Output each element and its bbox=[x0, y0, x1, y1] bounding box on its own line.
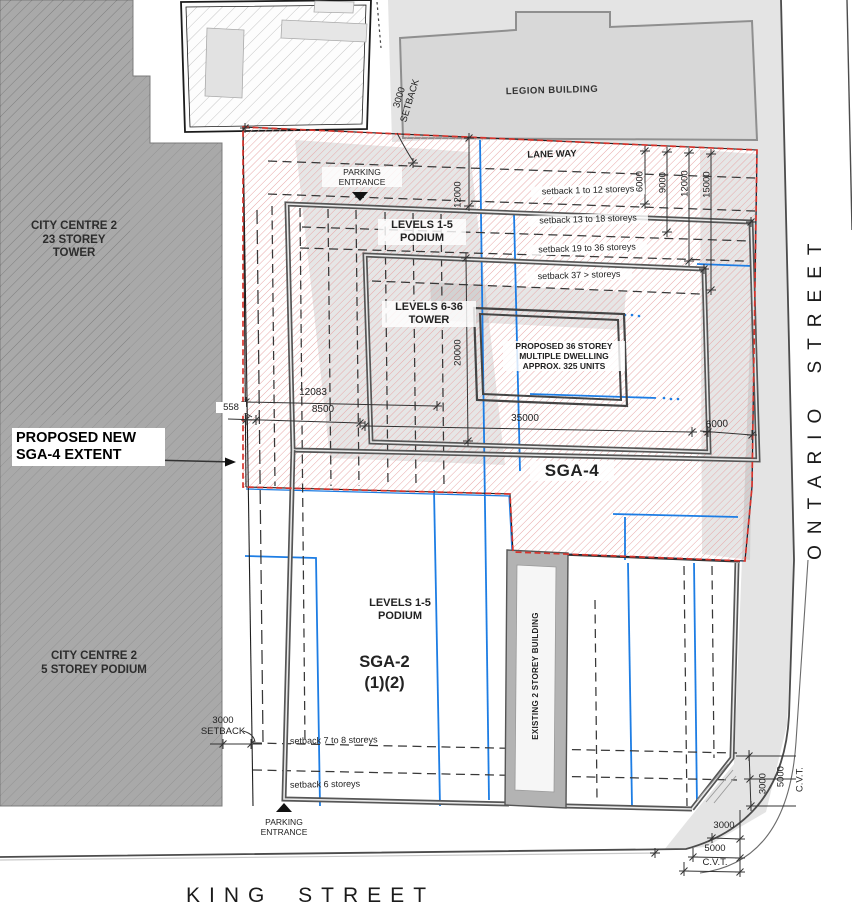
proposed-new-extent-label: PROPOSED NEW SGA-4 EXTENT bbox=[12, 428, 165, 466]
city-centre-tower-label: CITY CENTRE 2 23 STOREY TOWER bbox=[8, 220, 140, 261]
dim-35000: 35000 bbox=[490, 413, 560, 425]
dim-3000-vertical: 3000 bbox=[757, 761, 768, 807]
existing-building-label: EXISTING 2 STOREY BUILDING bbox=[531, 596, 543, 756]
dim-6000-east: 6000 bbox=[697, 418, 738, 432]
dim-558: 558 bbox=[216, 402, 246, 413]
dim-15000-lane: 15000 bbox=[701, 162, 712, 208]
dim-6000-lane: 6000 bbox=[634, 159, 645, 205]
dim-8500: 8500 bbox=[298, 404, 348, 416]
dim-3000-horizontal: 3000 bbox=[704, 820, 744, 831]
dim-5000-horizontal: 5000 bbox=[695, 843, 735, 854]
site-plan: LEGION BUILDING LANE WAY setback 1 to 12… bbox=[0, 0, 852, 922]
ontario-street-label: ONTARIO STREET bbox=[805, 228, 827, 564]
city-centre-podium-label: CITY CENTRE 2 5 STOREY PODIUM bbox=[8, 650, 180, 677]
sga4-label: SGA-4 bbox=[530, 461, 614, 481]
dim-12000-left: 12000 bbox=[452, 172, 463, 218]
levels-tower-label: LEVELS 6-36 TOWER bbox=[382, 301, 476, 327]
setback-6-label: setback 6 storeys bbox=[290, 778, 380, 790]
dim-5000-vertical: 5000 bbox=[775, 754, 786, 800]
dim-9000-lane: 9000 bbox=[657, 160, 668, 206]
dim-cvt-horizontal: C.V.T. bbox=[694, 857, 736, 868]
levels-podium-lower-label: LEVELS 1-5 PODIUM bbox=[360, 597, 440, 623]
lane-way-label: LANE WAY bbox=[513, 148, 591, 161]
extent-arrowhead bbox=[225, 458, 236, 467]
sga2-label: SGA-2 (1)(2) bbox=[332, 652, 437, 695]
dim-12000-lane: 12000 bbox=[679, 161, 690, 207]
parking-arrow-bottom-icon bbox=[276, 803, 292, 812]
setback-3000-left-label: 3000 SETBACK bbox=[192, 715, 254, 737]
dim-20000: 20000 bbox=[452, 330, 463, 376]
setback-7-8-label: setback 7 to 8 storeys bbox=[290, 734, 400, 747]
parking-entrance-top-label: PARKING ENTRANCE bbox=[322, 167, 402, 187]
proposed-building-label: PROPOSED 36 STOREY MULTIPLE DWELLING APP… bbox=[503, 341, 625, 371]
north-west-building bbox=[181, 0, 381, 132]
dim-12083: 12083 bbox=[283, 387, 343, 399]
king-street-label: KING STREET bbox=[186, 884, 435, 909]
parking-entrance-bottom-label: PARKING ENTRANCE bbox=[246, 817, 322, 837]
dim-cvt-vertical: C.V.T. bbox=[794, 757, 805, 803]
levels-podium-upper-label: LEVELS 1-5 PODIUM bbox=[378, 219, 466, 245]
